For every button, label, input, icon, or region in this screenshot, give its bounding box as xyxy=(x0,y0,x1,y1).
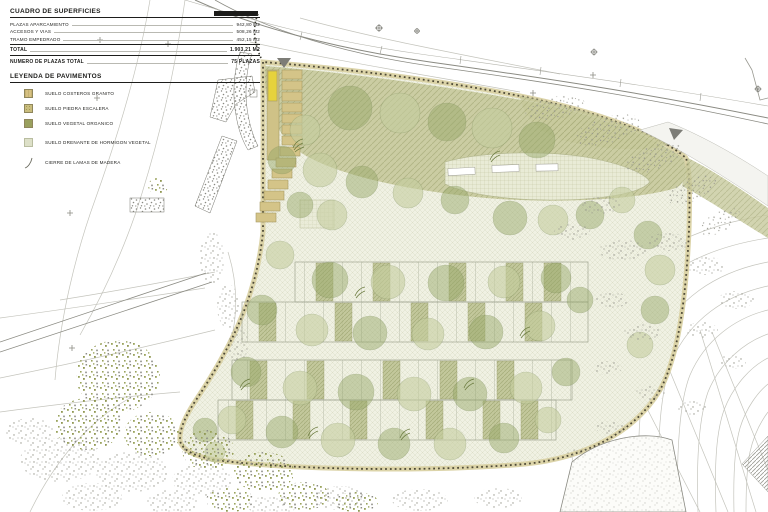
legend-item: SUELO DRENANTE DE HORMIGON VEGETAL xyxy=(24,138,260,147)
leader-line xyxy=(30,51,227,52)
tree xyxy=(541,263,571,293)
tree xyxy=(378,428,410,460)
plazas-row: NUMERO DE PLAZAS TOTAL 75 PLAZAS xyxy=(10,57,260,66)
tree xyxy=(247,295,277,325)
total-row: TOTAL 1.903,21 M2 xyxy=(10,46,260,55)
slope-hatch-triangle xyxy=(742,436,768,492)
tree xyxy=(510,372,542,404)
tree xyxy=(397,377,431,411)
tree xyxy=(266,416,298,448)
leader-line xyxy=(54,32,233,33)
legend-item: SUELO PIEDRA ESCALERA xyxy=(24,104,260,113)
row-value: 452,15 M2 xyxy=(236,37,260,42)
tree xyxy=(472,108,512,148)
granite-paving-swatch xyxy=(24,89,33,98)
tree xyxy=(303,153,337,187)
tree xyxy=(283,371,317,405)
tree xyxy=(290,115,320,145)
legend-label: SUELO DRENANTE DE HORMIGON VEGETAL xyxy=(45,140,151,145)
tree xyxy=(469,315,503,349)
plazas-label: NUMERO DE PLAZAS TOTAL xyxy=(10,59,84,65)
total-label: TOTAL xyxy=(10,47,27,53)
tree xyxy=(353,316,387,350)
tree xyxy=(317,200,347,230)
tree xyxy=(338,374,374,410)
tree xyxy=(434,428,466,460)
tree xyxy=(567,287,593,313)
row-label: TRAMO EMPEDRADO xyxy=(10,37,60,42)
plazas-value: 75 PLAZAS xyxy=(231,59,260,65)
legend-label: CIERRE DE LAMAS DE MADERA xyxy=(45,160,120,165)
tree xyxy=(525,311,555,341)
tree xyxy=(519,122,555,158)
info-panel: CUADRO DE SUPERFICIES PLAZAS APARCAMIENT… xyxy=(10,8,260,175)
legend-item: SUELO VEGETAL ORGANICO xyxy=(24,119,260,128)
tree xyxy=(412,318,444,350)
tree xyxy=(453,377,487,411)
tree xyxy=(380,93,420,133)
legend-label: SUELO COSTEROS GRANITO xyxy=(45,91,114,96)
row-label: PLAZAS APARCAMIENTO xyxy=(10,22,69,27)
tree xyxy=(266,241,294,269)
surfaces-table-title: CUADRO DE SUPERFICIES xyxy=(10,8,260,18)
tree xyxy=(296,314,328,346)
tree xyxy=(535,407,561,433)
legend-title: LEYENDA DE PAVIMENTOS xyxy=(10,73,260,83)
tree xyxy=(346,166,378,198)
tree xyxy=(645,255,675,285)
tree xyxy=(641,296,669,324)
tree xyxy=(312,262,348,298)
tree xyxy=(489,423,519,453)
pavement-legend: LEYENDA DE PAVIMENTOS SUELO COSTEROS GRA… xyxy=(10,73,260,169)
leader-line xyxy=(87,63,228,64)
tree xyxy=(218,406,246,434)
tree xyxy=(393,178,423,208)
table-row: TRAMO EMPEDRADO 452,15 M2 xyxy=(10,35,260,43)
row-label: ACCESOS Y VIAS xyxy=(10,29,51,34)
tree xyxy=(321,423,355,457)
draining-concrete-swatch xyxy=(24,138,33,147)
tree xyxy=(488,266,520,298)
tree xyxy=(428,103,466,141)
table-row: PLAZAS APARCAMIENTO 942,80 M2 xyxy=(10,20,260,28)
legend-label: SUELO VEGETAL ORGANICO xyxy=(45,121,113,126)
tree xyxy=(428,265,464,301)
organic-soil-swatch xyxy=(24,119,33,128)
divider xyxy=(10,44,260,45)
legend-item: SUELO COSTEROS GRANITO xyxy=(24,89,260,98)
legend-label: SUELO PIEDRA ESCALERA xyxy=(45,106,109,111)
total-value: 1.903,21 M2 xyxy=(230,47,260,53)
highlight-paving-slab xyxy=(268,71,277,101)
tree xyxy=(328,86,372,130)
row-value: 942,80 M2 xyxy=(236,22,260,27)
leader-line xyxy=(63,40,233,41)
tree xyxy=(371,265,405,299)
stone-stair-swatch xyxy=(24,104,33,113)
tree xyxy=(231,357,261,387)
row-value: 508,26 M2 xyxy=(236,29,260,34)
tree xyxy=(287,192,313,218)
tree xyxy=(493,201,527,235)
tree xyxy=(552,358,580,386)
wood-fence-curve-icon xyxy=(24,157,33,169)
divider xyxy=(10,55,260,56)
legend-item: CIERRE DE LAMAS DE MADERA xyxy=(24,157,260,169)
table-row: ACCESOS Y VIAS 508,26 M2 xyxy=(10,28,260,36)
tree xyxy=(268,146,296,174)
tree xyxy=(441,186,469,214)
leader-line xyxy=(72,25,234,26)
